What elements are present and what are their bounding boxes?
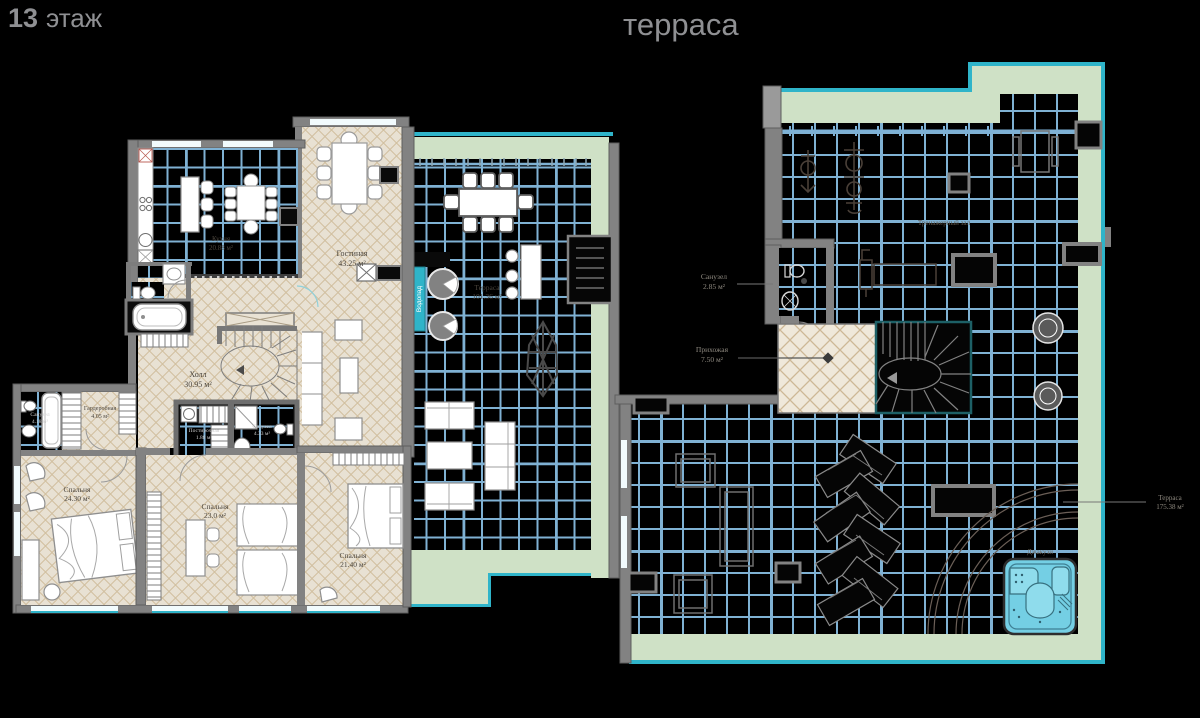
svg-text:Спальня: Спальня bbox=[339, 551, 367, 560]
svg-text:Терраса: Терраса bbox=[1158, 494, 1182, 502]
svg-text:Прихожая: Прихожая bbox=[696, 345, 729, 354]
svg-text:Джакузи: Джакузи bbox=[1027, 548, 1053, 556]
svg-text:Водопад: Водопад bbox=[416, 286, 423, 312]
svg-text:1.88 м²: 1.88 м² bbox=[196, 435, 212, 441]
svg-text:20.88 м²: 20.88 м² bbox=[209, 244, 233, 252]
svg-text:23.0 м²: 23.0 м² bbox=[204, 511, 227, 520]
svg-text:43.25 м²: 43.25 м² bbox=[338, 259, 366, 268]
svg-text:Тренажерный зал: Тренажерный зал bbox=[918, 219, 971, 227]
svg-text:Гардеробная: Гардеробная bbox=[84, 405, 117, 412]
svg-text:Терраса: Терраса bbox=[474, 283, 500, 292]
svg-text:101.36 м²: 101.36 м² bbox=[472, 292, 502, 301]
svg-text:13: 13 bbox=[8, 3, 38, 33]
svg-text:этаж: этаж bbox=[46, 3, 103, 33]
svg-text:4.05 м²: 4.05 м² bbox=[91, 414, 109, 420]
svg-text:175.38 м²: 175.38 м² bbox=[1156, 503, 1184, 511]
svg-text:Постирочная: Постирочная bbox=[189, 428, 220, 434]
svg-text:30.95 м²: 30.95 м² bbox=[184, 380, 212, 389]
svg-text:Спальня: Спальня bbox=[63, 485, 91, 494]
svg-text:Спальня: Спальня bbox=[201, 502, 229, 511]
svg-text:Санузел: Санузел bbox=[30, 412, 49, 418]
svg-text:Санузел: Санузел bbox=[701, 272, 727, 281]
svg-text:2.85 м²: 2.85 м² bbox=[703, 282, 726, 291]
svg-text:Санузел: Санузел bbox=[252, 424, 271, 430]
svg-text:7.50 м²: 7.50 м² bbox=[701, 355, 724, 364]
svg-text:Кухня: Кухня bbox=[212, 235, 231, 243]
svg-text:4.33 м²: 4.33 м² bbox=[254, 431, 270, 437]
svg-text:терраса: терраса bbox=[623, 7, 739, 42]
svg-text:21.40 м²: 21.40 м² bbox=[340, 560, 366, 569]
svg-text:Холл: Холл bbox=[189, 370, 206, 379]
svg-text:Гостиная: Гостиная bbox=[337, 249, 368, 258]
svg-text:24.30 м²: 24.30 м² bbox=[64, 494, 90, 503]
svg-text:4.18 м²: 4.18 м² bbox=[32, 419, 48, 425]
